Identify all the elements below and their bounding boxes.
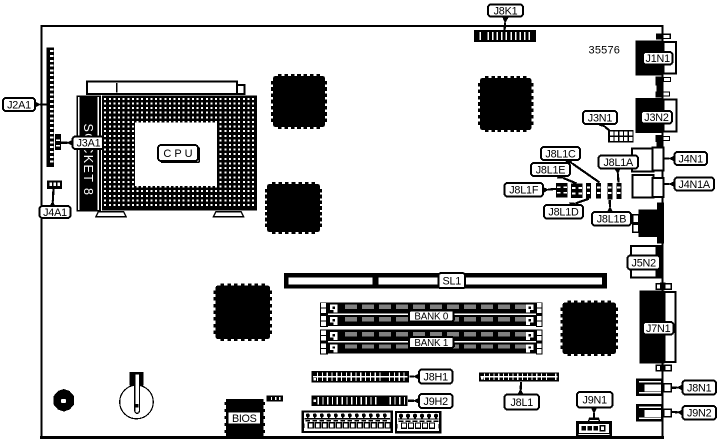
svg-text:J9N1: J9N1 [583, 395, 608, 407]
svg-text:J8L1F: J8L1F [509, 185, 539, 197]
svg-text:J8K1: J8K1 [494, 5, 518, 17]
svg-text:J7N1: J7N1 [646, 323, 671, 335]
svg-text:J8L1A: J8L1A [603, 157, 634, 169]
svg-text:C P U: C P U [163, 148, 192, 160]
svg-text:J8N1: J8N1 [687, 382, 712, 394]
svg-text:J5N2: J5N2 [632, 257, 657, 269]
svg-text:J4N1A: J4N1A [679, 179, 711, 191]
svg-text:J8L1E: J8L1E [536, 164, 566, 176]
svg-text:J9H2: J9H2 [424, 396, 449, 408]
svg-text:J2A1: J2A1 [7, 99, 31, 111]
svg-text:J8L1D: J8L1D [548, 207, 579, 219]
svg-text:J3A1: J3A1 [77, 138, 101, 150]
svg-text:SOCKET 8: SOCKET 8 [81, 124, 95, 197]
svg-text:BIOS: BIOS [232, 413, 257, 425]
svg-text:J4A1: J4A1 [43, 207, 67, 219]
svg-text:J8L1: J8L1 [510, 397, 533, 409]
svg-text:SL1: SL1 [442, 276, 461, 288]
svg-text:J1N1: J1N1 [646, 53, 671, 65]
svg-text:BANK 0: BANK 0 [414, 312, 448, 323]
svg-text:35576: 35576 [589, 45, 621, 57]
svg-text:J8H1: J8H1 [424, 371, 449, 383]
svg-text:BANK 1: BANK 1 [414, 338, 448, 349]
svg-text:J8L1C: J8L1C [545, 148, 576, 160]
svg-text:J3N2: J3N2 [644, 112, 669, 124]
svg-text:J3N1: J3N1 [588, 112, 613, 124]
svg-text:J9N2: J9N2 [687, 408, 712, 420]
svg-text:J8L1B: J8L1B [597, 214, 627, 226]
svg-text:J4N1: J4N1 [679, 153, 704, 165]
